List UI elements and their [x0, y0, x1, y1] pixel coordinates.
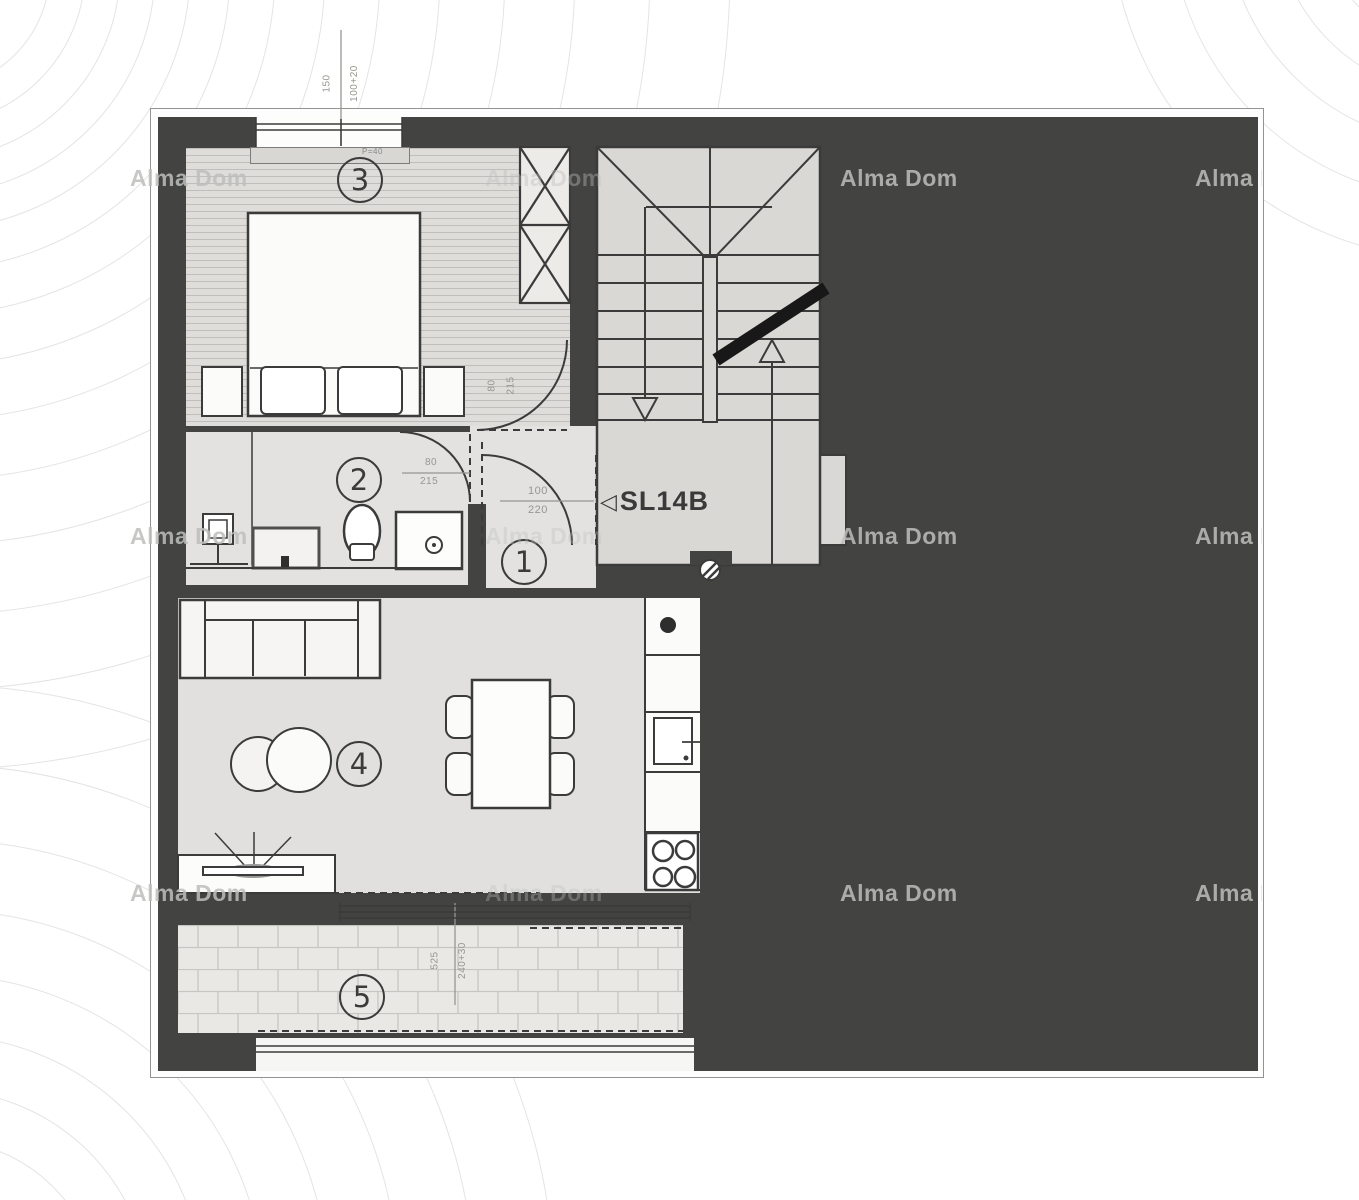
watermark: Alma Dom [130, 165, 248, 192]
watermark: Alma Dom [840, 523, 958, 550]
watermark: Alma Dom [485, 165, 603, 192]
watermark: Alma Dom [1195, 880, 1262, 907]
watermark: Alma Dom [485, 523, 603, 550]
watermark: Alma Dom [1195, 165, 1262, 192]
watermark: Alma Dom [485, 880, 603, 907]
floorplan-image: { "plan": { "unit_label": "SL14B", "unit… [0, 0, 1359, 1200]
watermark: Alma Dom [130, 523, 248, 550]
watermark: Alma Dom [1195, 523, 1262, 550]
watermark: Alma Dom [840, 165, 958, 192]
watermark: Alma Dom [130, 880, 248, 907]
watermark-layer: Alma Dom Alma Dom Alma Dom Alma Dom Alma… [0, 0, 1262, 1200]
watermark: Alma Dom [840, 880, 958, 907]
